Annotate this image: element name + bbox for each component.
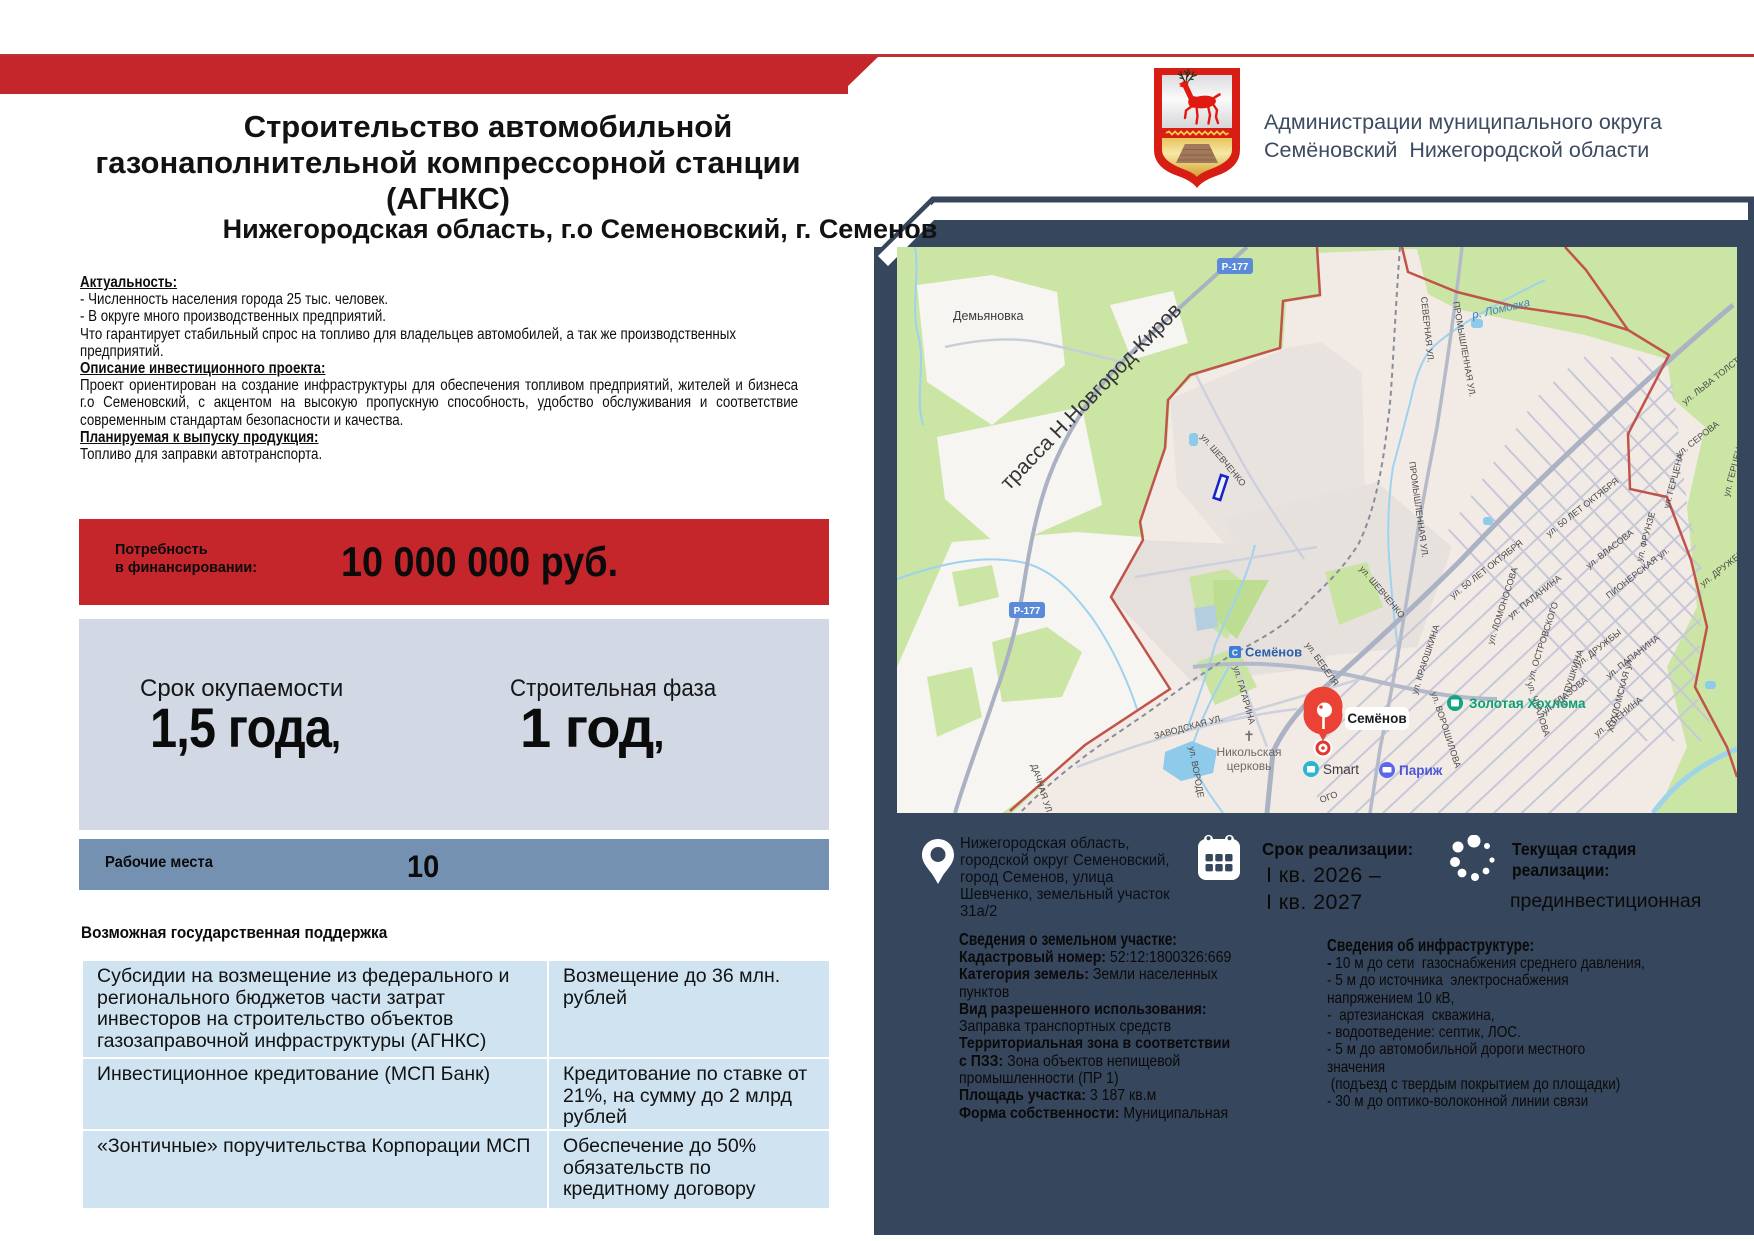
svg-text:С: С (1232, 648, 1238, 658)
svg-text:Париж: Париж (1399, 763, 1443, 778)
svg-text:церковь: церковь (1227, 759, 1272, 773)
svg-text:Smart: Smart (1323, 762, 1359, 777)
svg-text:✝: ✝ (1243, 728, 1255, 744)
svg-text:Р-177: Р-177 (1222, 262, 1249, 273)
svg-text:Демьяновка: Демьяновка (953, 309, 1024, 323)
svg-text:Р-177: Р-177 (1014, 606, 1041, 617)
svg-text:Семёнов: Семёнов (1347, 711, 1406, 726)
svg-text:Семёнов: Семёнов (1245, 645, 1302, 660)
svg-text:Никольская: Никольская (1216, 745, 1281, 759)
svg-text:Золотая Хохлома: Золотая Хохлома (1469, 696, 1586, 711)
